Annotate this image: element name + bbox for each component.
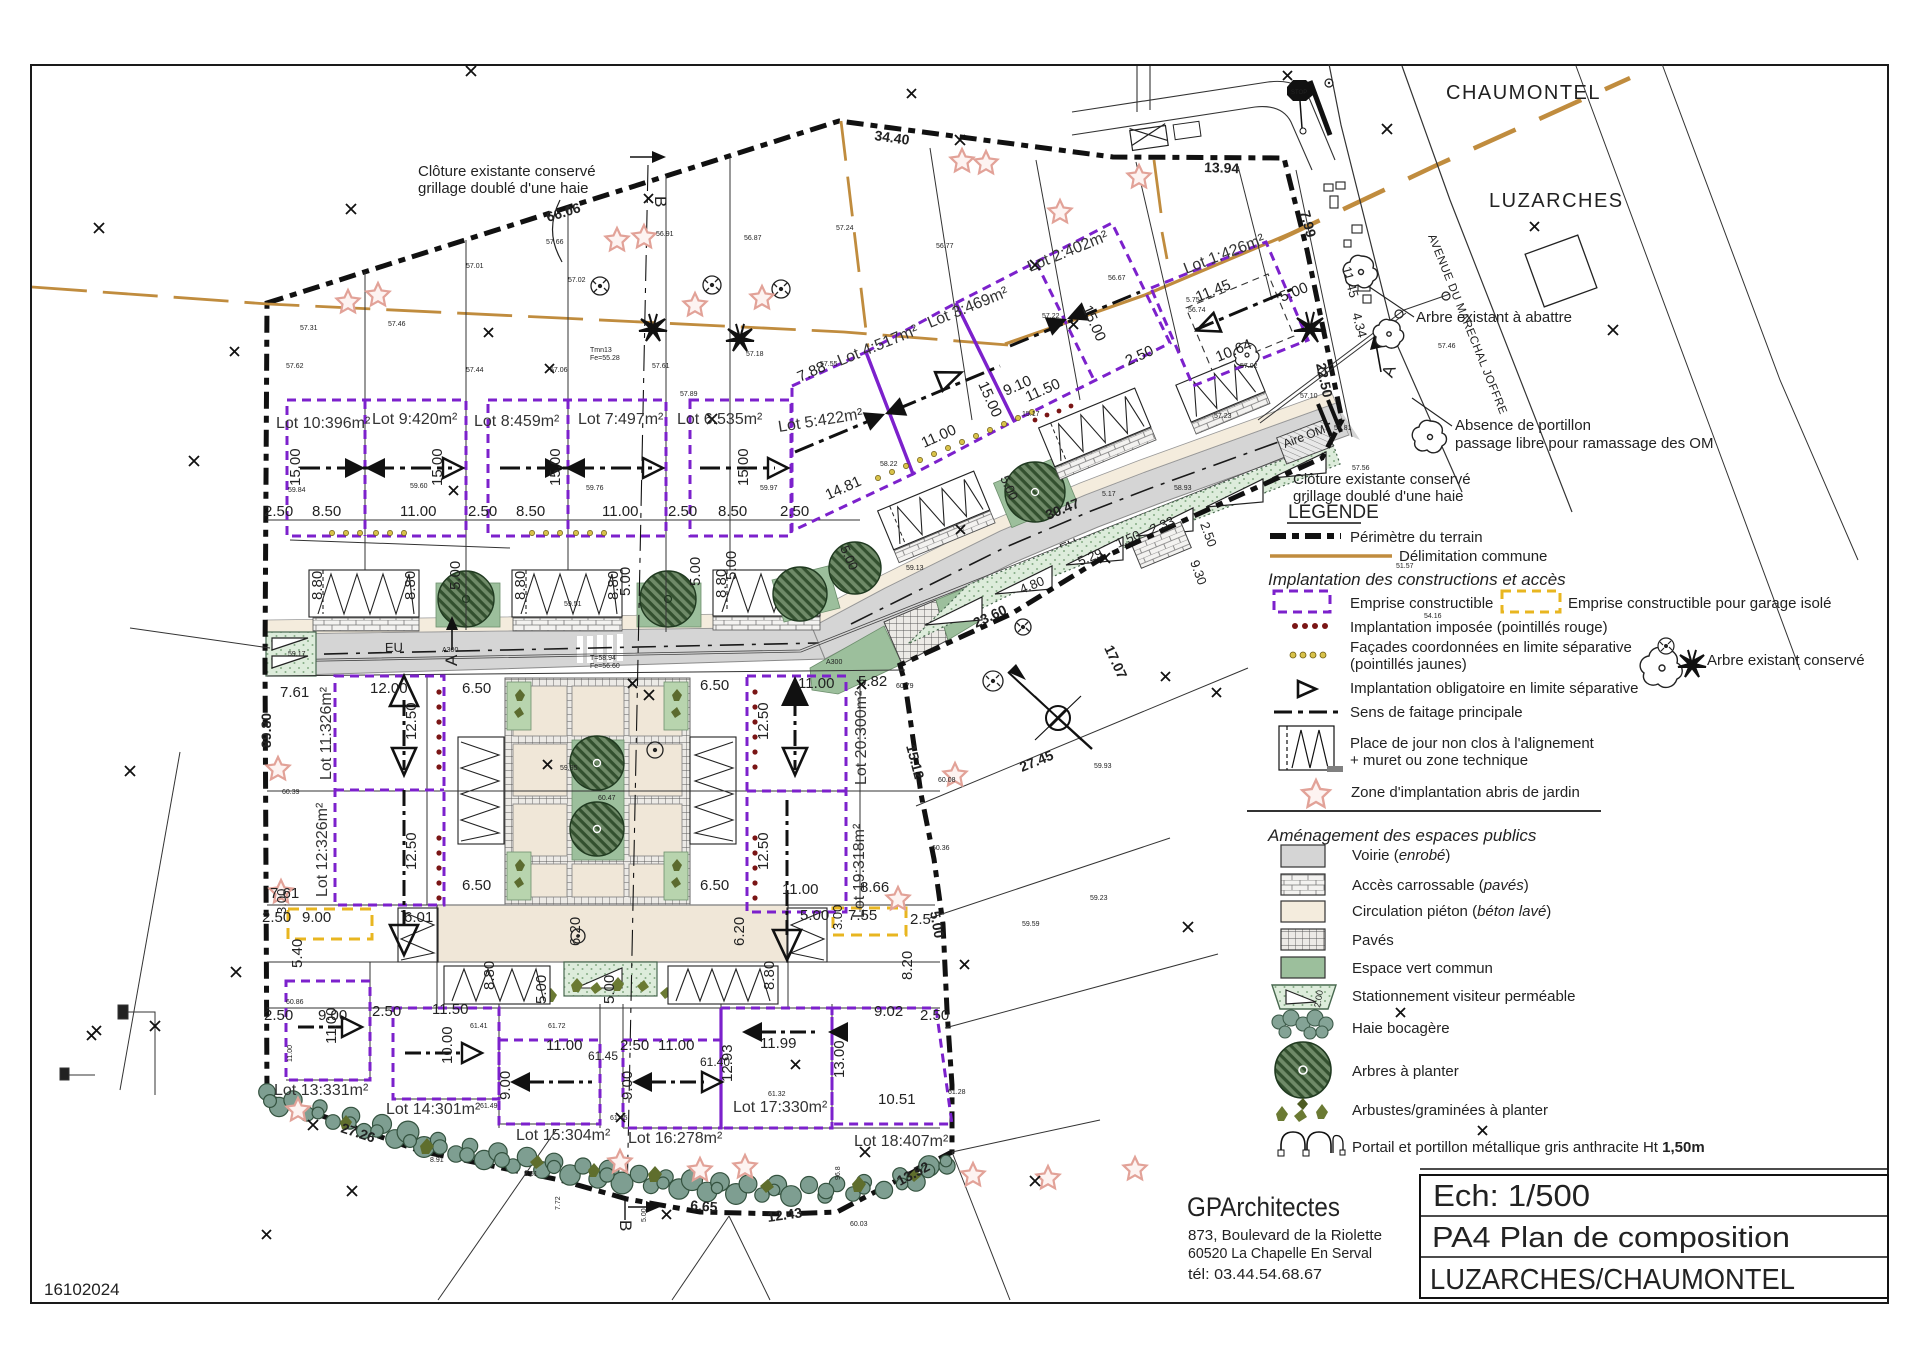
- svg-text:57.23: 57.23: [1214, 413, 1232, 420]
- svg-text:PA4 Plan de composition: PA4 Plan de composition: [1432, 1222, 1790, 1254]
- svg-text:Pavés: Pavés: [1352, 932, 1394, 949]
- svg-text:3.00: 3.00: [830, 905, 845, 930]
- svg-text:15.00: 15.00: [287, 448, 304, 486]
- svg-text:Portail et portillon métalliqu: Portail et portillon métallique gris ant…: [1352, 1139, 1705, 1156]
- svg-text:8.50: 8.50: [718, 503, 747, 520]
- svg-text:2.50: 2.50: [468, 503, 497, 520]
- svg-text:61.41: 61.41: [470, 1023, 488, 1030]
- svg-text:5.00: 5.00: [447, 561, 464, 590]
- svg-text:12.50: 12.50: [755, 702, 772, 740]
- svg-text:11.00: 11.00: [602, 503, 638, 520]
- svg-text:12.50: 12.50: [403, 702, 420, 740]
- svg-text:2.50: 2.50: [372, 1003, 401, 1020]
- svg-text:57.02: 57.02: [1240, 363, 1258, 370]
- svg-text:59.17: 59.17: [288, 651, 306, 658]
- svg-text:60.79: 60.79: [896, 683, 914, 690]
- svg-text:Lot 18:407m²: Lot 18:407m²: [854, 1133, 949, 1150]
- svg-text:Place de jour non clos à l'ali: Place de jour non clos à l'alignement: [1350, 735, 1595, 752]
- svg-text:16102024: 16102024: [44, 1280, 120, 1299]
- svg-text:11.00: 11.00: [798, 675, 834, 692]
- svg-text:59.84: 59.84: [288, 487, 306, 494]
- svg-text:11.99: 11.99: [760, 1035, 796, 1052]
- svg-text:Circulation piéton (béton lavé: Circulation piéton (béton lavé): [1352, 903, 1551, 920]
- svg-text:Lot 6:535m²: Lot 6:535m²: [677, 411, 763, 428]
- svg-text:5.00: 5.00: [723, 551, 740, 580]
- svg-text:9.00: 9.00: [619, 1071, 636, 1100]
- svg-text:Implantation obligatoire en li: Implantation obligatoire en limite sépar…: [1350, 680, 1639, 697]
- svg-text:57.62: 57.62: [286, 363, 304, 370]
- svg-text:13.94: 13.94: [1204, 159, 1240, 176]
- svg-text:6.50: 6.50: [700, 677, 729, 694]
- svg-text:+ muret ou zone technique: + muret ou zone technique: [1350, 752, 1528, 769]
- svg-text:5.51: 5.51: [524, 1171, 538, 1178]
- svg-text:Lot 16:278m²: Lot 16:278m²: [628, 1130, 723, 1147]
- svg-text:8.50: 8.50: [312, 503, 341, 520]
- svg-text:60.39: 60.39: [282, 789, 300, 796]
- svg-text:8.91: 8.91: [430, 1157, 444, 1164]
- svg-text:57.22: 57.22: [1042, 313, 1060, 320]
- svg-text:Arbustes/graminées à planter: Arbustes/graminées à planter: [1352, 1102, 1548, 1119]
- svg-text:873, Boulevard de la Riolette: 873, Boulevard de la Riolette: [1188, 1227, 1382, 1244]
- svg-text:Façades coordonnées en limite: Façades coordonnées en limite séparative: [1350, 639, 1632, 656]
- svg-text:59.97: 59.97: [760, 485, 778, 492]
- svg-text:12.50: 12.50: [403, 832, 420, 870]
- svg-text:LÉGENDE: LÉGENDE: [1288, 502, 1379, 523]
- svg-text:Lot 20:300m²: Lot 20:300m²: [853, 690, 870, 785]
- svg-text:59.51: 59.51: [564, 601, 582, 608]
- svg-text:6.50: 6.50: [462, 877, 491, 894]
- svg-text:Implantation des constructions: Implantation des constructions et accès: [1268, 570, 1566, 589]
- svg-text:6.20: 6.20: [731, 917, 748, 946]
- svg-text:Emprise constructible: Emprise constructible: [1350, 595, 1493, 612]
- svg-text:5.00: 5.00: [687, 557, 704, 586]
- svg-text:Absence de portillon: Absence de portillon: [1455, 417, 1591, 434]
- svg-text:11.00: 11.00: [287, 1045, 294, 1062]
- svg-text:61.32: 61.32: [768, 1091, 786, 1098]
- svg-text:5.00: 5.00: [800, 907, 829, 924]
- svg-text:12.50: 12.50: [755, 832, 772, 870]
- svg-text:8.66: 8.66: [860, 879, 889, 896]
- svg-text:57.46: 57.46: [388, 321, 406, 328]
- svg-text:3.00: 3.00: [274, 889, 289, 914]
- svg-text:7.61: 7.61: [280, 684, 309, 701]
- svg-text:EU: EU: [385, 640, 403, 655]
- svg-text:60520 La Chapelle En Serval: 60520 La Chapelle En Serval: [1188, 1245, 1372, 1262]
- svg-text:58.93: 58.93: [1174, 485, 1192, 492]
- svg-text:57.61: 57.61: [652, 363, 670, 370]
- svg-text:B: B: [651, 196, 670, 207]
- svg-text:96.8: 96.8: [835, 1166, 842, 1180]
- svg-text:2.50: 2.50: [780, 503, 809, 520]
- svg-text:Voirie (enrobé): Voirie (enrobé): [1352, 847, 1450, 864]
- svg-text:56.67: 56.67: [1108, 275, 1126, 282]
- svg-text:6.50: 6.50: [700, 877, 729, 894]
- svg-text:59.13: 59.13: [906, 565, 924, 572]
- svg-text:8.80: 8.80: [512, 571, 529, 600]
- svg-text:57.46: 57.46: [1438, 343, 1456, 350]
- svg-text:12.00: 12.00: [370, 680, 408, 697]
- svg-text:8.20: 8.20: [899, 951, 916, 980]
- svg-text:7.55: 7.55: [848, 907, 877, 924]
- svg-text:Tmn13: Tmn13: [590, 347, 612, 354]
- svg-text:Lot 12:326m²: Lot 12:326m²: [314, 802, 331, 897]
- svg-text:Clôture existante conservé: Clôture existante conservé: [418, 163, 596, 180]
- svg-text:Aménagement des espaces public: Aménagement des espaces publics: [1267, 826, 1537, 845]
- svg-text:GPArchitectes: GPArchitectes: [1187, 1192, 1340, 1222]
- svg-text:11.00: 11.00: [400, 503, 436, 520]
- svg-text:60.03: 60.03: [850, 1221, 868, 1228]
- svg-text:56.91: 56.91: [656, 231, 674, 238]
- svg-text:6.50: 6.50: [462, 680, 491, 697]
- svg-text:Zone d'implantation abris de j: Zone d'implantation abris de jardin: [1351, 784, 1580, 801]
- svg-text:5.00: 5.00: [601, 975, 618, 1004]
- svg-text:6.01: 6.01: [404, 909, 433, 926]
- svg-text:59.93: 59.93: [1094, 763, 1112, 770]
- svg-text:61.28: 61.28: [948, 1089, 966, 1096]
- svg-text:57.55: 57.55: [820, 361, 838, 368]
- svg-text:57.44: 57.44: [466, 367, 484, 374]
- svg-text:(pointillés jaunes): (pointillés jaunes): [1350, 656, 1467, 673]
- svg-text:61.49: 61.49: [480, 1103, 498, 1110]
- svg-text:Lot 11:326m²: Lot 11:326m²: [318, 686, 335, 780]
- svg-text:5.00: 5.00: [617, 567, 634, 596]
- svg-text:Lot 13:331m²: Lot 13:331m²: [274, 1082, 369, 1099]
- svg-text:11.00: 11.00: [323, 1008, 340, 1044]
- svg-text:Arbre existant à abattre: Arbre existant à abattre: [1416, 309, 1572, 326]
- svg-text:8.80: 8.80: [309, 571, 326, 600]
- svg-text:tél: 03.44.54.68.67: tél: 03.44.54.68.67: [1188, 1266, 1322, 1283]
- svg-text:5.75: 5.75: [1186, 297, 1200, 304]
- svg-text:2.50: 2.50: [264, 503, 293, 520]
- svg-text:B: B: [616, 1220, 635, 1231]
- svg-text:Lot 9:420m²: Lot 9:420m²: [372, 411, 458, 428]
- svg-text:Fe=56.60: Fe=56.60: [590, 663, 620, 670]
- svg-text:7.72: 7.72: [555, 1196, 562, 1210]
- svg-text:15.17: 15.17: [1022, 411, 1040, 418]
- svg-text:Emprise constructible pour gar: Emprise constructible pour garage isolé: [1568, 595, 1831, 612]
- svg-text:11.50: 11.50: [432, 1001, 468, 1018]
- svg-text:Lot 8:459m²: Lot 8:459m²: [474, 413, 560, 430]
- svg-text:2.50: 2.50: [620, 1037, 649, 1054]
- svg-text:60.86: 60.86: [286, 999, 304, 1006]
- svg-text:2.50: 2.50: [920, 1007, 949, 1024]
- svg-text:5.40: 5.40: [289, 939, 306, 968]
- svg-text:8.80: 8.80: [402, 571, 419, 600]
- svg-text:15.00: 15.00: [735, 448, 752, 486]
- svg-text:57.10: 57.10: [1300, 393, 1318, 400]
- svg-text:13.00: 13.00: [831, 1040, 848, 1078]
- svg-text:A300: A300: [826, 659, 842, 666]
- svg-text:59.76: 59.76: [586, 485, 604, 492]
- svg-text:15.00: 15.00: [429, 448, 446, 486]
- svg-text:Fe=55.28: Fe=55.28: [590, 355, 620, 362]
- svg-text:57.31: 57.31: [300, 325, 318, 332]
- svg-text:Délimitation commune: Délimitation commune: [1399, 548, 1547, 565]
- svg-text:89.80: 89.80: [258, 713, 274, 748]
- svg-text:Stationnement visiteur perméab: Stationnement visiteur perméable: [1352, 988, 1575, 1005]
- svg-text:56.77: 56.77: [936, 243, 954, 250]
- svg-text:59.95: 59.95: [560, 765, 578, 772]
- svg-text:5.17: 5.17: [1102, 491, 1116, 498]
- svg-text:Périmètre du terrain: Périmètre du terrain: [1350, 529, 1483, 546]
- svg-text:10.51: 10.51: [878, 1091, 916, 1108]
- svg-text:60.08: 60.08: [938, 777, 956, 784]
- svg-text:9.02: 9.02: [874, 1003, 903, 1020]
- svg-text:Lot 10:396m²: Lot 10:396m²: [276, 415, 371, 432]
- svg-text:Arbres à planter: Arbres à planter: [1352, 1063, 1459, 1080]
- svg-text:59.23: 59.23: [1090, 895, 1108, 902]
- svg-text:10.00: 10.00: [439, 1026, 456, 1064]
- svg-text:61.45: 61.45: [588, 1049, 618, 1063]
- svg-text:LUZARCHES/CHAUMONTEL: LUZARCHES/CHAUMONTEL: [1430, 1264, 1795, 1296]
- svg-text:grillage doublé d'une haie: grillage doublé d'une haie: [418, 180, 589, 197]
- svg-text:LUZARCHES: LUZARCHES: [1489, 190, 1624, 212]
- svg-text:59.60: 59.60: [410, 483, 428, 490]
- svg-text:STOP: STOP: [1291, 90, 1307, 96]
- svg-text:61.45: 61.45: [610, 1115, 628, 1122]
- svg-text:57.89: 57.89: [680, 391, 698, 398]
- svg-text:61.40: 61.40: [700, 1055, 730, 1069]
- svg-text:15.00: 15.00: [547, 448, 564, 486]
- svg-text:8.50: 8.50: [516, 503, 545, 520]
- svg-text:Implantation imposée (pointill: Implantation imposée (pointillés rouge): [1350, 619, 1608, 636]
- svg-text:Accès carrossable (pavés): Accès carrossable (pavés): [1352, 877, 1529, 894]
- svg-text:57.06: 57.06: [550, 367, 568, 374]
- svg-text:Ech: 1/500: Ech: 1/500: [1433, 1178, 1590, 1213]
- svg-text:8.80: 8.80: [481, 961, 498, 990]
- svg-text:A300: A300: [442, 647, 458, 654]
- svg-text:Clôture existante conservé: Clôture existante conservé: [1293, 471, 1471, 488]
- svg-text:CHAUMONTEL: CHAUMONTEL: [1446, 82, 1601, 104]
- svg-text:Lot 19:318m²: Lot 19:318m²: [851, 823, 868, 918]
- svg-text:11.00: 11.00: [658, 1037, 694, 1054]
- svg-text:Espace vert commun: Espace vert commun: [1352, 960, 1493, 977]
- svg-text:T=58.94: T=58.94: [590, 655, 616, 662]
- svg-text:passage libre pour ramassage d: passage libre pour ramassage des OM: [1455, 435, 1713, 452]
- svg-text:56.87: 56.87: [744, 235, 762, 242]
- svg-text:61.72: 61.72: [548, 1023, 566, 1030]
- svg-text:59.59: 59.59: [1022, 921, 1040, 928]
- svg-text:A: A: [442, 654, 461, 666]
- svg-text:60.47: 60.47: [598, 795, 616, 802]
- svg-text:5.82: 5.82: [858, 673, 887, 690]
- svg-text:56.74: 56.74: [1188, 307, 1206, 314]
- svg-text:57.01: 57.01: [466, 263, 484, 270]
- svg-text:2.50: 2.50: [668, 503, 697, 520]
- svg-text:6.65: 6.65: [690, 1197, 719, 1215]
- svg-text:5.00: 5.00: [641, 1208, 648, 1222]
- svg-text:9.00: 9.00: [497, 1071, 514, 1100]
- svg-text:9.00: 9.00: [302, 909, 331, 926]
- svg-text:Lot 7:497m²: Lot 7:497m²: [578, 411, 664, 428]
- svg-text:57.81: 57.81: [1334, 425, 1352, 432]
- svg-text:60.36: 60.36: [932, 845, 950, 852]
- svg-text:5.00: 5.00: [533, 975, 550, 1004]
- svg-text:Lot 15:304m²: Lot 15:304m²: [516, 1127, 611, 1144]
- svg-text:58.22: 58.22: [880, 461, 898, 468]
- svg-text:57.24: 57.24: [836, 225, 854, 232]
- svg-text:6.20: 6.20: [567, 917, 584, 946]
- svg-text:11.00: 11.00: [782, 881, 818, 898]
- svg-text:2.50: 2.50: [264, 1007, 293, 1024]
- svg-text:Haie bocagère: Haie bocagère: [1352, 1020, 1450, 1037]
- svg-text:8.80: 8.80: [761, 961, 778, 990]
- svg-text:57.02: 57.02: [568, 277, 586, 284]
- svg-text:Sens de faitage principale: Sens de faitage principale: [1350, 704, 1523, 721]
- svg-text:Arbre existant conservé: Arbre existant conservé: [1707, 652, 1865, 669]
- svg-text:57.18: 57.18: [746, 351, 764, 358]
- svg-text:Lot 17:330m²: Lot 17:330m²: [733, 1099, 828, 1116]
- svg-text:11.00: 11.00: [546, 1037, 582, 1054]
- svg-text:Lot 14:301m²: Lot 14:301m²: [386, 1101, 481, 1118]
